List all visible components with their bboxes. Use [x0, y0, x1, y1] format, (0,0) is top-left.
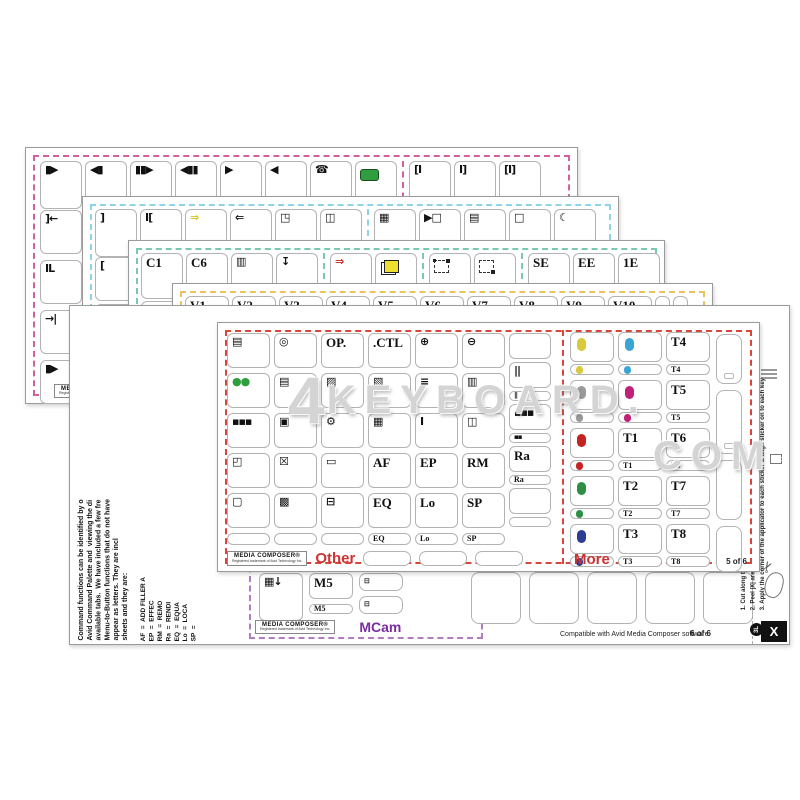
- key-label: T6: [671, 431, 709, 444]
- panel-grid-icon-key: ▧: [368, 373, 411, 408]
- mcam-bottom-row: MEDIA COMPOSER® Registered trademark of …: [255, 619, 401, 635]
- list-panel-icon-key: ▤: [274, 373, 317, 408]
- more-narrow-blanks-column: [716, 334, 742, 572]
- magenta-dot-icon-key: [618, 412, 662, 423]
- key-op: OP.: [321, 333, 364, 368]
- key-label: AF: [373, 456, 410, 469]
- clip-bars-icon-key: IL: [40, 260, 82, 304]
- key-t7: T7: [666, 476, 710, 506]
- legend-line: RM = REMO: [156, 577, 164, 641]
- grid-dots-icon-key: ▪▪▪: [509, 404, 551, 430]
- red-dot-icon-key: [570, 428, 614, 458]
- blank-sticker: [509, 333, 551, 359]
- applicator-sketch: [770, 454, 782, 464]
- blank-sticker: [274, 533, 317, 545]
- key-label: T5: [671, 383, 709, 396]
- yellow-pages-icon: [384, 260, 399, 273]
- outline-rect-icon-key: ▭: [321, 453, 364, 488]
- key-t4: T4: [666, 364, 710, 375]
- zoom-out-icon-key: ⊖: [462, 333, 505, 368]
- green-pills-icon-key: ●●: [227, 373, 270, 408]
- paragraph-line: appear as letters. They are incl: [113, 499, 122, 641]
- more-column-1: [570, 332, 614, 572]
- key-t2: T2: [618, 476, 662, 506]
- mcam-keys: ▦↓M5M5⊟⊟: [259, 573, 403, 621]
- page-pen-icon: ▨: [326, 376, 363, 388]
- zoom-out-icon: ⊖: [467, 336, 504, 348]
- film-small-stack: ⊟⊟: [359, 573, 403, 621]
- monitor-icon-key: ▣: [274, 413, 317, 448]
- key-label: T8: [671, 527, 709, 540]
- yellow-dot-icon: [576, 366, 583, 374]
- narrow-blank-sticker: [716, 460, 742, 520]
- key-label: Lo: [420, 535, 429, 543]
- blank-small-sticker: [363, 551, 411, 566]
- gray-dot-icon: [577, 386, 586, 399]
- other-section-grid: ▤●●▪▪▪◰▢◎▤▣☒▩OP.▨⚙▭⊟.CTL▧▦AFEQEQ⊕≡IEPLoL…: [227, 333, 551, 545]
- trim-out-icon: I]: [459, 164, 495, 176]
- key-label: T1: [623, 431, 661, 444]
- other-column-6: ⊖▥◫RMSPSP: [462, 333, 505, 545]
- key-label: C1: [146, 256, 182, 269]
- product-image-canvas: ▮▶◀▮▮▮▶◀▮▮▶◀☎[II][I] ]←IL→|▮▶ MEDIA COMP…: [0, 0, 800, 800]
- green-dot-icon: [576, 510, 583, 518]
- m5-key-stack: M5M5: [309, 573, 353, 621]
- table-columns-icon: ▥: [236, 256, 272, 268]
- blue-dot-icon: [625, 338, 634, 351]
- blank-sticker: [321, 533, 364, 545]
- two-rects-icon-key: ◰: [227, 453, 270, 488]
- key-eq: EQ: [368, 533, 411, 545]
- key-label: Lo: [420, 496, 457, 509]
- navy-dot-icon-key: [570, 524, 614, 554]
- bracket-close-icon: ]: [100, 212, 136, 224]
- striped-panel-icon: ▦: [379, 212, 415, 224]
- magenta-dot-icon: [625, 386, 634, 399]
- key-ra: Ra: [509, 475, 551, 485]
- sheet6-side-text: Command functions can be identified by o…: [78, 426, 199, 641]
- key-lo: Lo: [415, 533, 458, 545]
- other-section-label: Other: [315, 550, 355, 567]
- abbreviation-legend: AF = ADD FILLER AEP = EFFECRM = REMORa =…: [140, 577, 199, 641]
- key-t8: T8: [666, 524, 710, 554]
- key-ra: Ra: [509, 446, 551, 472]
- gear-icon: ⚙: [326, 416, 363, 428]
- grid-dots-icon: ▪▪: [514, 434, 522, 442]
- mark-clip-left-icon: ]←: [45, 213, 81, 225]
- target-rings-icon: ◎: [279, 336, 316, 348]
- eject-icon-key: ⊟: [321, 493, 364, 528]
- paragraph-line: Menu-to-Button functions that do not hav…: [104, 499, 113, 641]
- green-pills-icon: ●●: [232, 376, 269, 388]
- blank-small-sticker: [475, 551, 523, 566]
- key-label: T5: [671, 414, 680, 422]
- red-dot-icon-key: [570, 460, 614, 471]
- sheet6-brand-label: MEDIA COMPOSER® Registered trademark of …: [255, 620, 335, 634]
- gray-dot-icon: [576, 414, 583, 422]
- yellow-dot-icon-key: [570, 332, 614, 362]
- key-label: EQ: [373, 496, 410, 509]
- legend-line: Ra = RENDI: [165, 577, 173, 641]
- more-section-label: More: [574, 551, 610, 568]
- other-column-3: OP.▨⚙▭⊟: [321, 333, 364, 545]
- page-pen-icon-key: ▨: [321, 373, 364, 408]
- film-down-icon: ▦↓: [264, 576, 302, 588]
- other-column-1: ▤●●▪▪▪◰▢: [227, 333, 270, 545]
- mark-clip-left-icon-key: ]←: [40, 210, 82, 254]
- paragraph-line: Avid Command Palette and viewing the di: [87, 499, 96, 641]
- key-t3: T3: [618, 556, 662, 567]
- green-dot-icon-key: [570, 476, 614, 506]
- key-af: AF: [368, 453, 411, 488]
- key-label: T8: [671, 558, 680, 566]
- other-column-5: ⊕≡IEPLoLo: [415, 333, 458, 545]
- back-arrow-icon: ⇐: [235, 212, 271, 224]
- key-t6: T6: [666, 428, 710, 458]
- blank-sticker: [509, 517, 551, 527]
- film-icon: ⊟: [364, 578, 369, 586]
- other-bottom-strip: MEDIA COMPOSER® Registered trademark of …: [227, 550, 523, 567]
- grid-panel-icon: ▤: [469, 212, 505, 224]
- red-arrow-icon: ⇒: [335, 256, 371, 268]
- key-label: T7: [671, 479, 709, 492]
- key-t2: T2: [618, 508, 662, 519]
- key-label: .CTL: [373, 336, 410, 349]
- more-column-3: T4T4T5T5T6T6T7T7T8T8: [666, 332, 710, 572]
- key-t8: T8: [666, 556, 710, 567]
- key-label: SP: [467, 535, 476, 543]
- narrow-blank-sticker: [716, 334, 742, 384]
- magenta-dot-icon-key: [618, 380, 662, 410]
- bracket-pair-icon: I[: [145, 212, 181, 224]
- key-t3: T3: [618, 524, 662, 554]
- blank-sticker: [509, 488, 551, 514]
- audio-sliders-icon: ||: [514, 392, 517, 400]
- key-label: C6: [191, 256, 227, 269]
- blank-key-sticker: [471, 572, 521, 624]
- red-dot-icon: [576, 462, 583, 470]
- gray-dot-icon-key: [570, 380, 614, 410]
- blue-dot-icon-key: [618, 364, 662, 375]
- mixer-icon-key: ≡: [415, 373, 458, 408]
- key-label: T3: [623, 558, 632, 566]
- key-ep: EP: [415, 453, 458, 488]
- step-forward-icon-key: ▮▶: [40, 161, 82, 209]
- key-m5: M5: [309, 604, 353, 614]
- compatibility-note: Compatible with Avid Media Composer soft…: [560, 631, 709, 638]
- key-label: SE: [533, 256, 569, 269]
- step-forward-icon: ▮▶: [45, 164, 81, 176]
- x-box-icon: ☒: [279, 456, 316, 468]
- phone-record-icon: ☎: [315, 164, 351, 176]
- key-label: T3: [623, 527, 661, 540]
- film-icon: ⊟: [364, 601, 369, 609]
- download-arrow-icon: ↧: [281, 256, 317, 268]
- list-panel-icon: ▤: [279, 376, 316, 388]
- hand-icon: [762, 570, 786, 600]
- sheet5-section-divider: [562, 330, 564, 564]
- sticker-slot-mark: [724, 373, 734, 379]
- mcam-section-label: MCam: [359, 619, 401, 635]
- split-window-icon: ◫: [325, 212, 361, 224]
- key-t5: T5: [666, 412, 710, 423]
- selection-dots-icon: [434, 260, 449, 273]
- other-blank-smalls: [363, 551, 523, 566]
- split-columns-icon-key: ◫: [462, 413, 505, 448]
- command-functions-paragraph: Command functions can be identified by o…: [78, 499, 131, 641]
- key-label: RM: [467, 456, 504, 469]
- narrow-blank-sticker: [716, 390, 742, 454]
- trim-in-icon: [I: [414, 164, 450, 176]
- step-backward-2-icon: ◀▮▮: [180, 164, 216, 176]
- two-rects-icon: ◰: [232, 456, 269, 468]
- panel-grid-icon: ▧: [373, 376, 410, 388]
- key-label: M5: [314, 605, 326, 613]
- sheet5-brand-label: MEDIA COMPOSER® Registered trademark of …: [227, 551, 307, 565]
- key-sp: SP: [462, 533, 505, 545]
- monitor-icon: ▣: [279, 416, 316, 428]
- gray-dot-icon-key: [570, 412, 614, 423]
- film-down-icon-key: ▦↓: [259, 573, 303, 621]
- blank-key-sticker: [529, 572, 579, 624]
- key-label: Ra: [514, 449, 550, 462]
- key-label: T2: [623, 479, 661, 492]
- other-column-2: ◎▤▣☒▩: [274, 333, 317, 545]
- blank-key-sticker: [587, 572, 637, 624]
- outline-rect-icon: ▭: [326, 456, 363, 468]
- step-backward-icon: ◀▮: [90, 164, 126, 176]
- key-t4: T4: [666, 332, 710, 362]
- window-arrow-icon: ◳: [280, 212, 316, 224]
- key-label: EQ: [373, 535, 385, 543]
- key-lo: Lo: [415, 493, 458, 528]
- sheet6-page-number: 6 of 6: [690, 629, 711, 638]
- key-label: T4: [671, 366, 680, 374]
- sticker-slot-mark: [724, 443, 734, 449]
- key-rm: RM: [462, 453, 505, 488]
- key-label: T4: [671, 335, 709, 348]
- target-rings-icon-key: ◎: [274, 333, 317, 368]
- zoom-in-icon: ⊕: [420, 336, 457, 348]
- other-column-4: .CTL▧▦AFEQEQ: [368, 333, 411, 545]
- monitor-lines-icon: ▤: [232, 336, 269, 348]
- legend-line: SP =: [190, 577, 198, 641]
- step-forward-2-icon: ▮▮▶: [135, 164, 171, 176]
- key-label: OP.: [326, 336, 363, 349]
- zoom-in-icon-key: ⊕: [415, 333, 458, 368]
- yellow-dot-icon-key: [570, 364, 614, 375]
- other-column-7: ||||▪▪▪▪▪RaRa: [509, 333, 551, 545]
- film-columns-icon: ▥: [467, 376, 504, 388]
- key-label: T7: [671, 510, 680, 518]
- mixer-icon: ≡: [420, 376, 457, 388]
- sheet6-blank-stickers: [471, 572, 753, 624]
- legend-line: EP = EFFEC: [148, 577, 156, 641]
- more-section-grid: T1T1T2T2T3T3T4T4T5T5T6T6T7T7T8T8: [570, 332, 742, 572]
- x-box-icon-key: ☒: [274, 453, 317, 488]
- key-t7: T7: [666, 508, 710, 519]
- legend-line: EQ = EQUA: [173, 577, 181, 641]
- key-t5: T5: [666, 380, 710, 410]
- blank-sticker: [227, 533, 270, 545]
- key-m5: M5: [309, 573, 353, 599]
- key-t1: T1: [618, 460, 662, 471]
- blue-dot-icon-key: [618, 332, 662, 362]
- magenta-dot-icon: [624, 414, 631, 422]
- selection-box-icon: [479, 260, 494, 273]
- audio-sliders-icon: ||: [514, 365, 550, 377]
- key-label: SP: [467, 496, 504, 509]
- key-eq: EQ: [368, 493, 411, 528]
- play-icon: ▶: [225, 164, 261, 176]
- clip-bars-icon: IL: [45, 263, 81, 275]
- gear-icon-key: ⚙: [321, 413, 364, 448]
- sticker-sheet-5: ▤●●▪▪▪◰▢◎▤▣☒▩OP.▨⚙▭⊟.CTL▧▦AFEQEQ⊕≡IEPLoL…: [217, 322, 760, 572]
- clipboard-icon: ▦: [373, 416, 410, 428]
- key-label: T2: [623, 510, 632, 518]
- cut-x-mark: X: [761, 621, 787, 642]
- key-t1: T1: [618, 428, 662, 458]
- paragraph-line: sheets and they are:: [122, 499, 131, 641]
- key-t6: T6: [666, 460, 710, 471]
- trim-bar-icon: I: [420, 416, 457, 428]
- film-icon-key: ⊟: [359, 596, 403, 614]
- key-label: 1E: [623, 256, 659, 269]
- split-columns-icon: ◫: [467, 416, 504, 428]
- hand-scissors-sketch: ✂: [759, 554, 785, 604]
- blank-key-sticker: [645, 572, 695, 624]
- film-icon-key: ⊟: [359, 573, 403, 591]
- key-label: M5: [314, 576, 352, 589]
- filled-panel-icon: ▩: [279, 496, 316, 508]
- outline-square-icon: ▢: [232, 496, 269, 508]
- filled-panel-icon-key: ▩: [274, 493, 317, 528]
- monitor-lines-icon-key: ▤: [227, 333, 270, 368]
- grid-dots-icon-key: ▪▪▪: [227, 413, 270, 448]
- paragraph-line: Command functions can be identified by o: [78, 499, 87, 641]
- brand-subtext: Registered trademark of Avid Technology …: [260, 628, 330, 632]
- play-reverse-icon: ◀: [270, 164, 306, 176]
- key-ctl: .CTL: [368, 333, 411, 368]
- trim-bar-icon-key: I: [415, 413, 458, 448]
- audio-sliders-icon-key: ||: [509, 362, 551, 388]
- film-columns-icon-key: ▥: [462, 373, 505, 408]
- key-sp: SP: [462, 493, 505, 528]
- eject-icon: ⊟: [326, 496, 363, 508]
- green-dot-icon: [577, 482, 586, 495]
- empty-square-icon: □: [514, 212, 550, 224]
- sheet5-page-number: 5 of 6: [726, 557, 747, 566]
- outline-square-icon-key: ▢: [227, 493, 270, 528]
- grid-dots-icon-key: ▪▪: [509, 433, 551, 443]
- forward-arrow-yellow-icon: ⇒: [190, 212, 226, 224]
- blank-small-sticker: [419, 551, 467, 566]
- legend-line: AF = ADD FILLER A: [140, 577, 148, 641]
- key-label: T1: [623, 462, 632, 470]
- grid-dots-icon: ▪▪▪: [232, 416, 269, 428]
- key-label: Ra: [514, 476, 524, 484]
- blue-dot-icon: [624, 366, 631, 374]
- trim-both-icon: [I]: [504, 164, 540, 176]
- brand-subtext: Registered trademark of Avid Technology …: [232, 560, 302, 564]
- navy-dot-icon: [577, 530, 586, 543]
- crescent-icon: ☾: [559, 212, 595, 224]
- paragraph-line: available tabs. We have included a few f…: [96, 499, 105, 641]
- audio-sliders-icon-key: ||: [509, 391, 551, 401]
- more-column-2: T1T1T2T2T3T3: [618, 332, 662, 572]
- record-button-icon: [360, 169, 379, 181]
- red-dot-icon: [577, 434, 586, 447]
- play-window-icon: ▶□: [424, 212, 460, 224]
- key-label: EE: [578, 256, 614, 269]
- key-label: T6: [671, 462, 680, 470]
- clipboard-icon-key: ▦: [368, 413, 411, 448]
- green-dot-icon-key: [570, 508, 614, 519]
- key-label: EP: [420, 456, 457, 469]
- legend-line: Lo = LOCA: [182, 577, 190, 641]
- grid-dots-icon: ▪▪▪: [514, 407, 550, 419]
- yellow-dot-icon: [577, 338, 586, 351]
